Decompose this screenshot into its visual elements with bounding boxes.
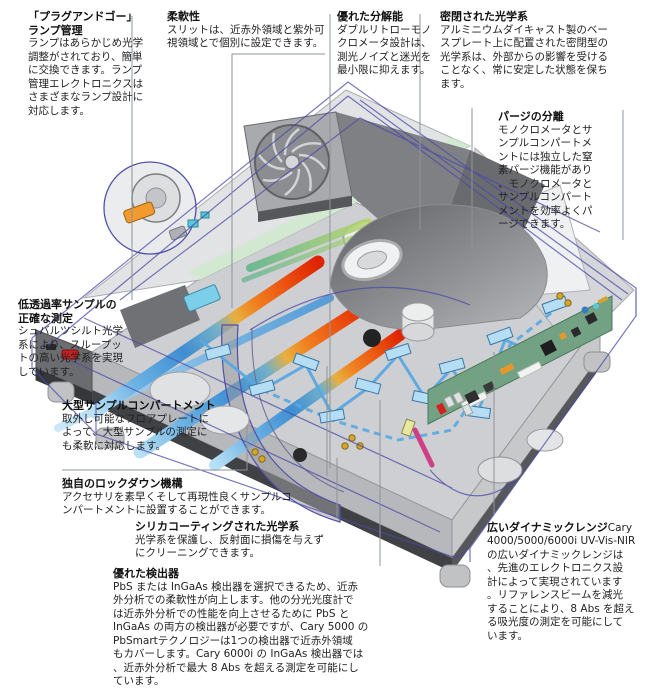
annotation-title-suffix: Cary [608, 522, 632, 534]
annotation-detectors: 優れた検出器 PbS または InGaAs 検出器を選択できるため、近赤 外分析… [113, 567, 381, 689]
annotation-plug-and-go: 「プラグアンドゴー」 ランプ管理 ランプはあらかじめ光学 調整がされており、簡単… [28, 10, 150, 118]
annotation-title: 優れた分解能 [337, 10, 442, 24]
annotation-sealed-optics: 密閉された光学系 アルミニウムダイキャスト製のベー スプレート上に配置された密閉… [440, 10, 640, 91]
annotation-body: アルミニウムダイキャスト製のベー スプレート上に配置された密閉型の 光学系は、外… [440, 24, 640, 92]
annotation-resolution: 優れた分解能 ダブルリトローモノ クロメータ設計は、 測光ノイズと迷光を 最小限… [337, 10, 442, 78]
annotation-body: 4000/5000/6000i UV-Vis-NIR の広いダイナミックレンジは… [487, 535, 643, 643]
fan-icon [244, 112, 352, 222]
annotation-title: 低透過率サンプルの 正確な測定 [18, 298, 146, 325]
spectrophotometer-cutaway-diagram: 「プラグアンドゴー」 ランプ管理 ランプはあらかじめ光学 調整がされており、簡単… [0, 0, 646, 689]
annotation-body: スリットは、近赤外領域と紫外可 視領域とで個別に設定できます。 [167, 24, 342, 51]
annotation-title: 優れた検出器 [113, 567, 381, 581]
annotation-body: シュバルツシルト光学 系により、スループッ トの高い光学系を実現 しています。 [18, 325, 146, 379]
annotation-title: 広いダイナミックレンジ [487, 521, 608, 534]
annotation-dynamic-range: 広いダイナミックレンジCary 4000/5000/6000i UV-Vis-N… [487, 516, 643, 643]
annotation-title: 密閉された光学系 [440, 10, 640, 24]
annotation-body: 光学系を保護し、反射面に損傷を与えず にクリーニングできます。 [135, 534, 385, 561]
annotation-large-sample: 大型サンプルコンパートメント 取外し可能なフロアプレートに よって、大型サンプル… [62, 399, 257, 453]
annotation-lockdown: 独自のロックダウン機構 アクセサリを素早くそして再現性良くサンプルコ ンパートメ… [62, 477, 342, 518]
annotation-title: 「プラグアンドゴー」 ランプ管理 [28, 10, 150, 37]
annotation-body: モノクロメータとサ ンプルコンパートメ ントには独立した窒 素パージ機能があり … [498, 124, 620, 232]
annotation-title: 独自のロックダウン機構 [62, 477, 342, 491]
annotation-title: 大型サンプルコンパートメント [62, 399, 257, 413]
annotation-body: ランプはあらかじめ光学 調整がされており、簡単 に交換できます。ランプ 管理エレ… [28, 37, 150, 118]
annotation-silica: シリカコーティングされた光学系 光学系を保護し、反射面に損傷を与えず にクリーニ… [135, 520, 385, 561]
annotation-title: 柔軟性 [167, 10, 342, 24]
annotation-body: PbS または InGaAs 検出器を選択できるため、近赤 外分析での柔軟性が向… [113, 581, 381, 689]
annotation-low-transmission: 低透過率サンプルの 正確な測定 シュバルツシルト光学 系により、スループッ トの… [18, 298, 146, 379]
annotation-body: アクセサリを素早くそして再現性良くサンプルコ ンパートメントに設置することができ… [62, 491, 342, 518]
annotation-flexibility: 柔軟性 スリットは、近赤外領域と紫外可 視領域とで個別に設定できます。 [167, 10, 342, 51]
annotation-body: 取外し可能なフロアプレートに よって、大型サンプルの測定に も柔軟に対応します。 [62, 413, 257, 454]
annotation-title: パージの分離 [498, 110, 620, 124]
annotation-purge: パージの分離 モノクロメータとサ ンプルコンパートメ ントには独立した窒 素パー… [498, 110, 620, 232]
annotation-body: ダブルリトローモノ クロメータ設計は、 測光ノイズと迷光を 最小限に抑えます。 [337, 24, 442, 78]
annotation-title: シリカコーティングされた光学系 [135, 520, 385, 534]
